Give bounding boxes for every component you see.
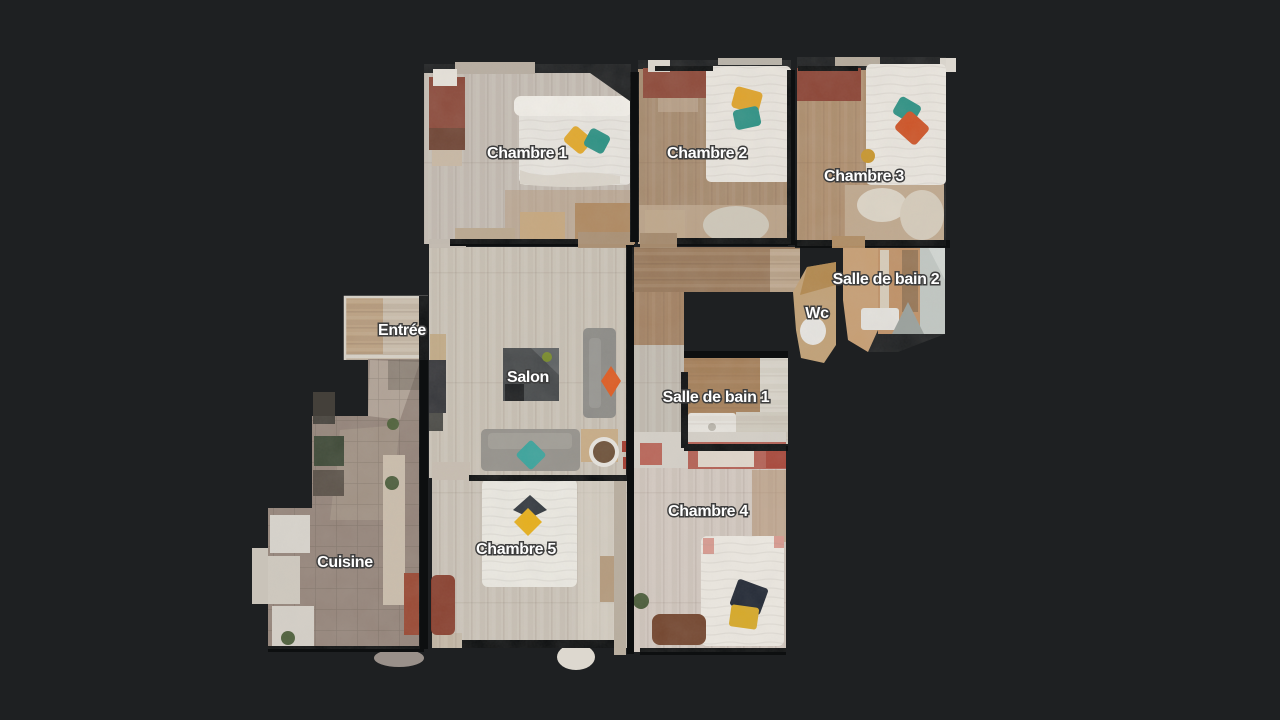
svg-text:Entrée: Entrée <box>378 322 426 339</box>
svg-text:Chambre 5: Chambre 5 <box>476 541 556 558</box>
svg-text:Chambre 1: Chambre 1 <box>487 145 567 162</box>
svg-text:Wc: Wc <box>805 305 829 322</box>
svg-text:Chambre 3: Chambre 3 <box>824 168 904 185</box>
svg-text:Salle de bain 1: Salle de bain 1 <box>663 389 770 406</box>
svg-text:Salle de bain 2: Salle de bain 2 <box>833 271 940 288</box>
svg-text:Chambre 2: Chambre 2 <box>667 145 747 162</box>
svg-text:Chambre 4: Chambre 4 <box>668 503 748 520</box>
svg-text:Cuisine: Cuisine <box>317 554 373 571</box>
svg-text:Salon: Salon <box>507 369 549 386</box>
